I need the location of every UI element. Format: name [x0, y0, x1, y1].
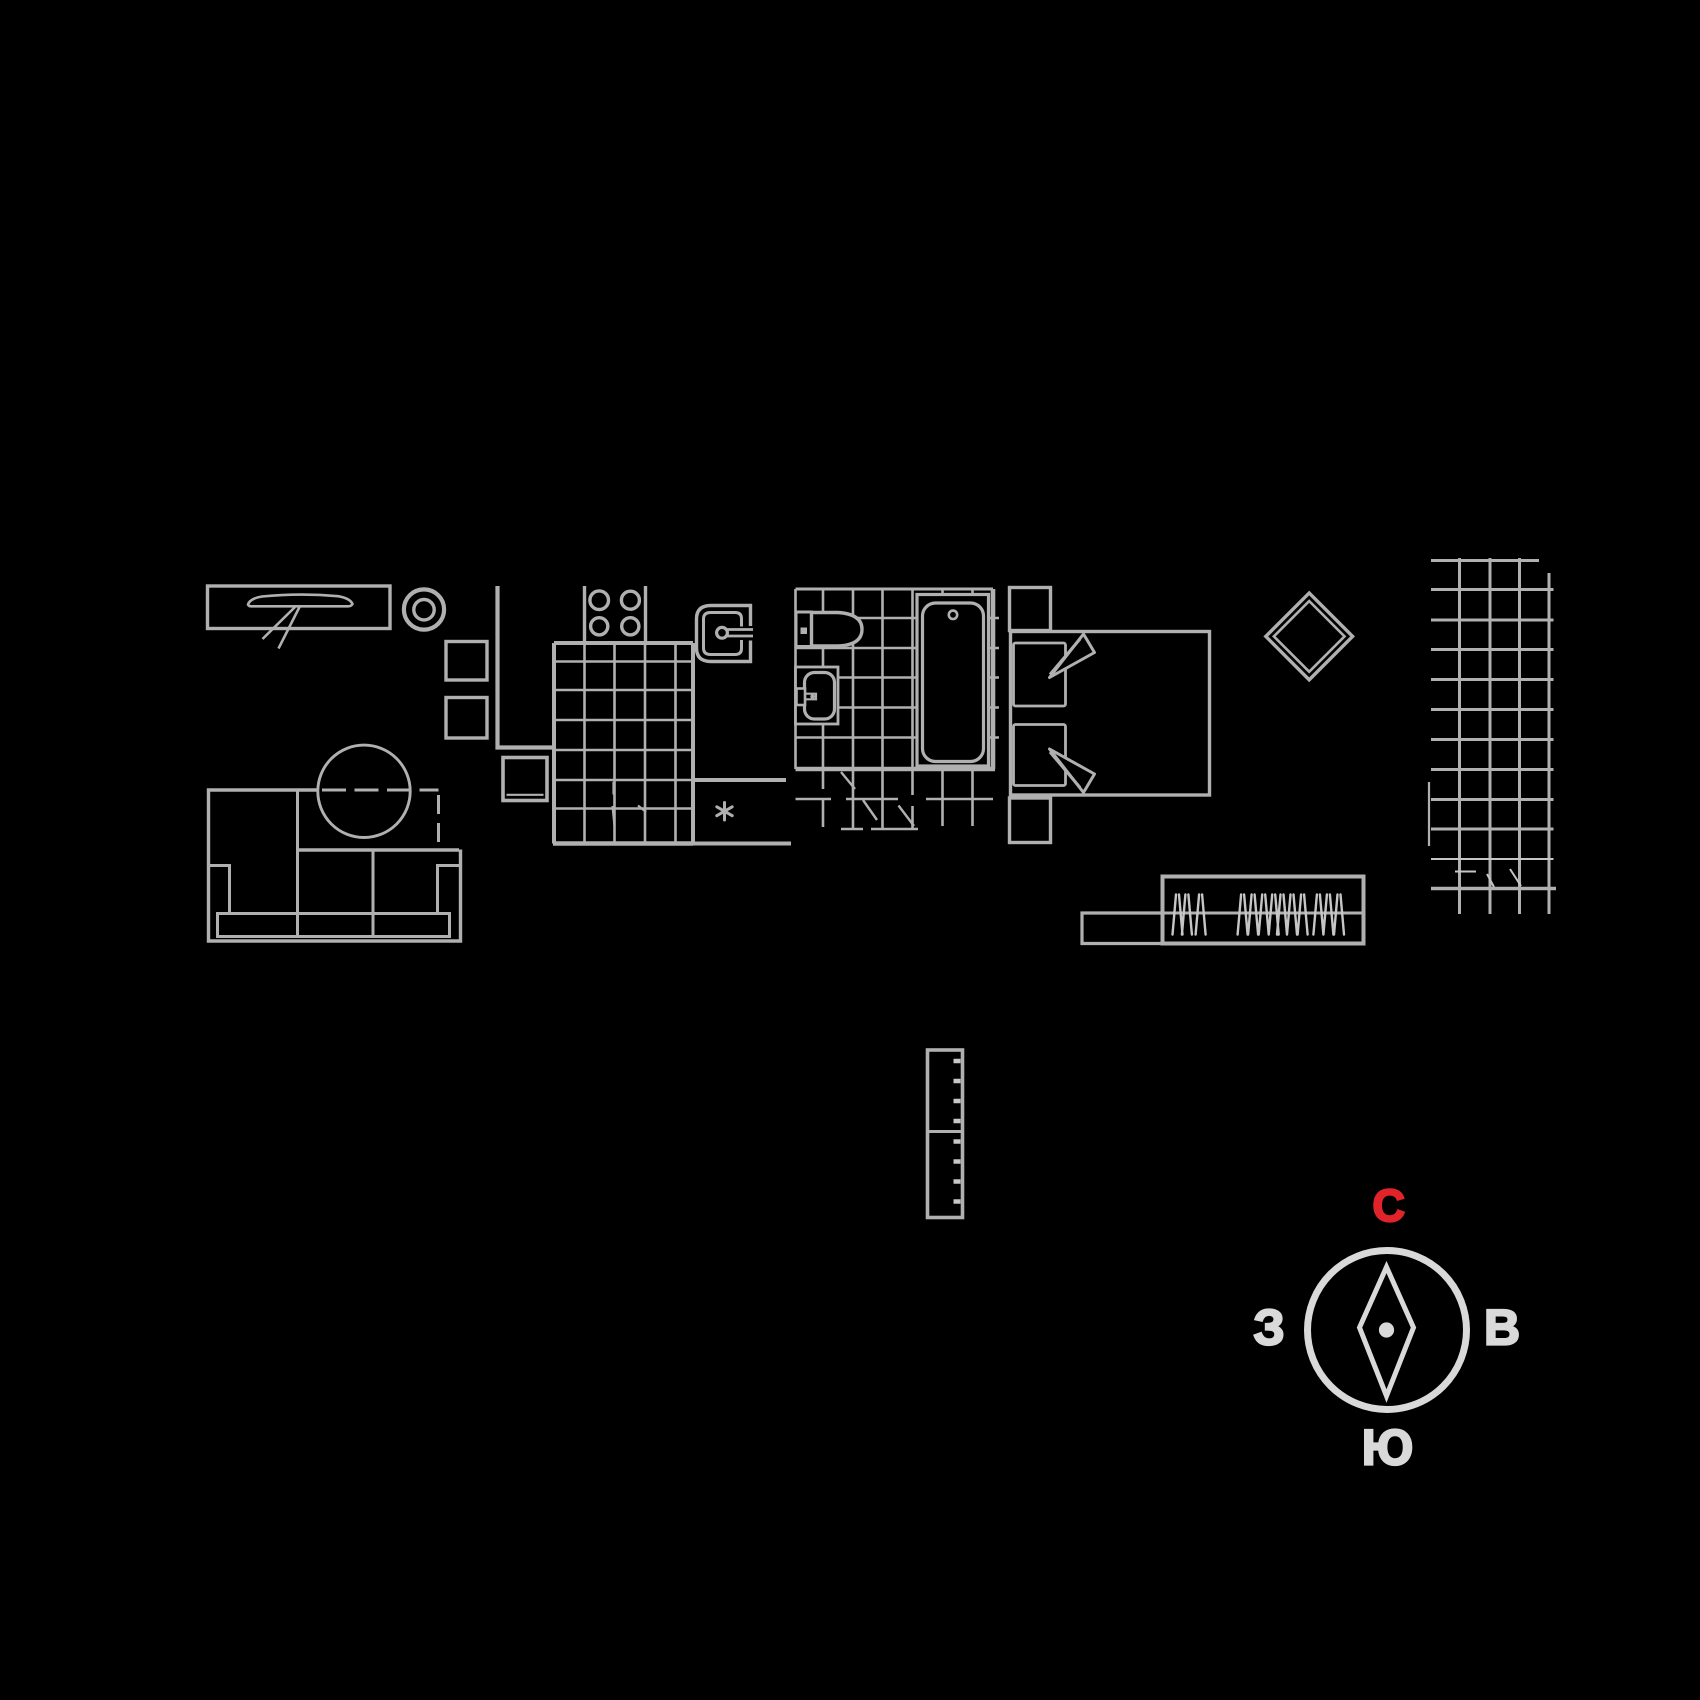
svg-text:З: З	[1253, 1299, 1284, 1355]
svg-text:Ю: Ю	[1362, 1420, 1414, 1476]
svg-text:С: С	[1372, 1180, 1405, 1231]
svg-text:В: В	[1484, 1299, 1520, 1355]
